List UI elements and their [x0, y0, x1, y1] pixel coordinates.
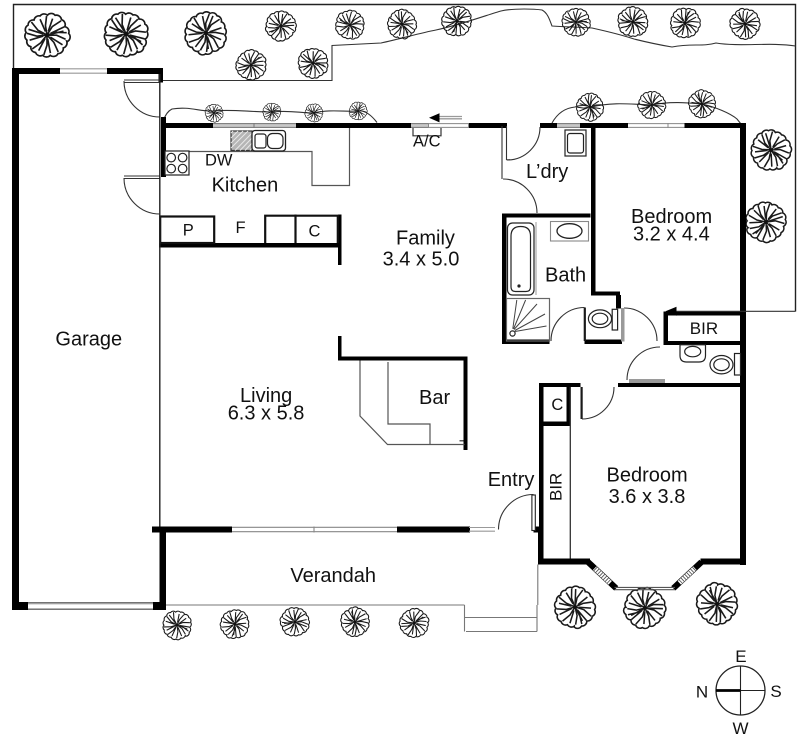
svg-text:A/C: A/C [413, 133, 441, 151]
svg-text:P: P [183, 222, 194, 240]
svg-text:E: E [735, 647, 746, 666]
svg-text:Kitchen: Kitchen [212, 175, 279, 197]
svg-text:DW: DW [205, 152, 233, 170]
svg-text:Verandah: Verandah [290, 565, 376, 587]
svg-text:F: F [236, 219, 246, 237]
svg-text:Bedroom: Bedroom [607, 465, 688, 487]
svg-text:BIR: BIR [547, 473, 566, 501]
svg-text:N: N [696, 683, 708, 702]
svg-text:S: S [770, 682, 781, 701]
svg-text:6.3 x 5.8: 6.3 x 5.8 [228, 403, 305, 425]
svg-text:C: C [309, 223, 321, 241]
svg-text:Family: Family [396, 228, 455, 250]
svg-text:Entry: Entry [488, 469, 535, 491]
svg-text:3.6 x 3.8: 3.6 x 3.8 [609, 486, 686, 508]
svg-text:BIR: BIR [690, 319, 718, 338]
svg-text:L’dry: L’dry [526, 161, 568, 183]
svg-text:Garage: Garage [55, 329, 122, 351]
svg-text:C: C [551, 396, 563, 414]
svg-text:3.4 x 5.0: 3.4 x 5.0 [383, 249, 460, 271]
svg-text:3.2 x 4.4: 3.2 x 4.4 [633, 224, 710, 246]
svg-text:Bath: Bath [545, 265, 586, 287]
svg-text:Bar: Bar [419, 387, 450, 409]
svg-text:W: W [733, 719, 749, 738]
